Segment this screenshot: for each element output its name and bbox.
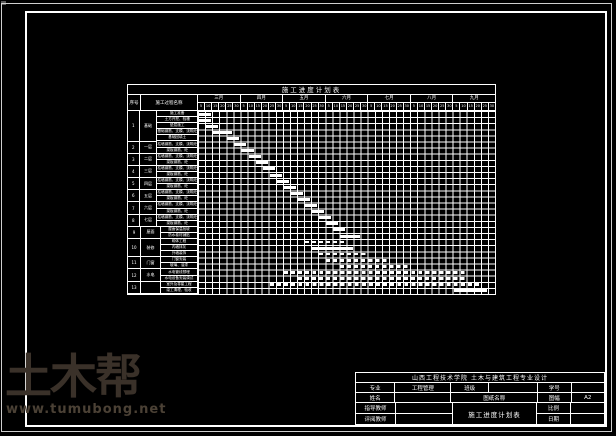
advisor-value	[396, 403, 453, 413]
row-category: 一层	[140, 142, 158, 154]
gantt-bar	[206, 125, 218, 128]
day-label: 30	[446, 103, 453, 111]
row-seq: 8	[128, 215, 140, 227]
gantt-bar	[305, 204, 317, 207]
task-group: 7六层柱墙钢筋、支模、浇筑砼梁板钢筋、砼	[128, 202, 197, 214]
day-label: 15	[382, 103, 389, 111]
task-cells: 柱墙钢筋、支模、浇筑砼梁板钢筋、砼	[157, 142, 197, 154]
name-value	[395, 393, 451, 402]
month-label: 七月	[368, 95, 411, 103]
gantt-bar	[241, 149, 253, 152]
day-label: 5	[326, 103, 333, 111]
row-seq: 3	[128, 154, 140, 166]
gantt-bar	[284, 271, 466, 274]
task-groups: 1基础施工准备土方开挖、验槽垫层施工基础钢筋、支模、浇筑砼基础回填土2一层柱墙钢…	[128, 111, 197, 294]
row-seq: 9	[128, 227, 141, 239]
drawing-name: 施工进度计划表	[453, 403, 537, 424]
month-label: 六月	[326, 95, 369, 103]
seq-column-header: 序号	[128, 95, 141, 111]
gantt-bar	[312, 210, 324, 213]
row-category: 水电	[141, 269, 161, 281]
task-cells: 屋面保温找坡防水卷材铺贴	[161, 227, 197, 239]
day-label: 25	[439, 103, 446, 111]
day-label: 5	[368, 103, 375, 111]
date-label: 日期	[537, 414, 571, 425]
sheet-size-value: A2	[572, 393, 604, 402]
day-label: 15	[425, 103, 432, 111]
task-group: 10装修砌体工程内墙抹灰外墙装饰	[128, 239, 197, 257]
scale-date-column: 比例 日期	[537, 403, 604, 424]
gantt-bar	[326, 222, 338, 225]
sheet-size-label: 图幅	[538, 393, 571, 402]
task-cells: 柱墙钢筋、支模、浇筑砼梁板钢筋、砼	[157, 215, 197, 227]
watermark-site: www.tumubong.net	[6, 402, 166, 417]
schedule-left-header: 序号 施工过程名称	[128, 95, 197, 111]
day-label: 15	[297, 103, 304, 111]
row-seq: 5	[128, 178, 140, 190]
gantt-bar	[319, 253, 367, 256]
name-label: 姓名	[356, 393, 395, 402]
month-header-row: 三月四月五月六月七月八月九月	[197, 95, 495, 103]
task-group: 1基础施工准备土方开挖、验槽垫层施工基础钢筋、支模、浇筑砼基础回填土	[128, 111, 197, 142]
title-block-row-1: 专业 工程管理 班级 学号	[356, 383, 604, 393]
gantt-bar	[340, 265, 409, 268]
task-group: 6五层柱墙钢筋、支模、浇筑砼梁板钢筋、砼	[128, 190, 197, 202]
day-label: 30	[404, 103, 411, 111]
row-seq: 1	[128, 111, 140, 142]
gantt-bar	[213, 131, 232, 134]
schedule-table: 施工进度计划表 序号 施工过程名称 三月四月五月六月七月八月九月 5101520…	[127, 84, 496, 295]
student-id-label: 学号	[538, 383, 571, 392]
gantt-bar	[319, 216, 331, 219]
gantt-bar	[270, 174, 282, 177]
day-label: 5	[453, 103, 460, 111]
task-cells: 柱墙钢筋、支模、浇筑砼梁板钢筋、砼	[157, 154, 197, 166]
day-label: 30	[319, 103, 326, 111]
day-label: 10	[248, 103, 255, 111]
day-label: 30	[276, 103, 283, 111]
scale-label: 比例	[537, 403, 571, 413]
row-seq: 10	[128, 239, 141, 257]
day-label: 10	[375, 103, 382, 111]
gantt-grid	[197, 111, 495, 294]
day-label: 20	[390, 103, 397, 111]
task-group: 12水电水电管线预埋水电设备安装调试	[128, 269, 197, 281]
day-label: 20	[475, 103, 482, 111]
gantt-bar	[284, 186, 296, 189]
teacher-column: 指导教师 评阅教师	[356, 403, 453, 424]
task-group: 9屋面屋面保温找坡防水卷材铺贴	[128, 227, 197, 239]
day-label: 15	[212, 103, 219, 111]
task-group: 11门窗门窗安装玻璃、油漆	[128, 257, 197, 269]
day-label: 20	[432, 103, 439, 111]
task-cells: 施工准备土方开挖、验槽垫层施工基础钢筋、支模、浇筑砼基础回填土	[157, 111, 197, 142]
gantt-bar	[263, 167, 275, 170]
school-title: 山西工程技术学院 土木与建筑工程专业设计	[356, 373, 604, 383]
gantt-bar	[256, 161, 268, 164]
row-category: 七层	[140, 215, 158, 227]
day-label: 25	[312, 103, 319, 111]
date-value	[571, 414, 604, 425]
day-label: 20	[219, 103, 226, 111]
month-label: 九月	[453, 95, 495, 103]
day-label: 15	[340, 103, 347, 111]
task-group: 8七层柱墙钢筋、支模、浇筑砼梁板钢筋、砼	[128, 215, 197, 227]
task-cells: 柱墙钢筋、支模、浇筑砼梁板钢筋、砼	[157, 178, 197, 190]
gantt-bar	[333, 228, 345, 231]
day-label: 30	[489, 103, 495, 111]
row-category	[141, 282, 161, 294]
day-label: 10	[205, 103, 212, 111]
row-seq: 7	[128, 202, 140, 214]
day-label: 15	[255, 103, 262, 111]
day-label: 5	[198, 103, 205, 111]
day-label: 10	[290, 103, 297, 111]
schedule-title: 施工进度计划表	[128, 85, 495, 95]
row-category: 二层	[140, 154, 158, 166]
day-label: 5	[241, 103, 248, 111]
day-label: 10	[333, 103, 340, 111]
gantt-bar	[326, 259, 388, 262]
advisor-label: 指导教师	[356, 403, 396, 413]
row-category: 门窗	[141, 257, 161, 269]
gantt-bar	[312, 247, 352, 250]
day-header-row: 5101520253051015202530510152025305101520…	[197, 103, 495, 111]
class-value	[489, 383, 538, 392]
title-block-row-2: 姓名 图纸名称 图幅 A2	[356, 393, 604, 403]
gantt-bar	[227, 137, 239, 140]
month-label: 八月	[411, 95, 454, 103]
title-block: 山西工程技术学院 土木与建筑工程专业设计 专业 工程管理 班级 学号 姓名 图纸…	[355, 372, 605, 425]
major-label: 专业	[356, 383, 395, 392]
row-seq: 12	[128, 269, 141, 281]
reviewer-label: 评阅教师	[356, 414, 396, 425]
row-category: 屋面	[141, 227, 161, 239]
task-group: 5四层柱墙钢筋、支模、浇筑砼梁板钢筋、砼	[128, 178, 197, 190]
gantt-bar	[454, 289, 487, 292]
gantt-bar	[249, 155, 261, 158]
reviewer-value	[396, 414, 453, 425]
gantt-bar	[270, 283, 480, 286]
day-label: 10	[460, 103, 467, 111]
gantt-bar	[305, 241, 345, 244]
month-label: 三月	[198, 95, 241, 103]
row-category: 五层	[140, 190, 158, 202]
row-category: 装修	[141, 239, 161, 257]
day-label: 30	[361, 103, 368, 111]
row-seq: 11	[128, 257, 141, 269]
task-group: 13室外及零星工程竣工清理、验收	[128, 282, 197, 294]
day-label: 20	[262, 103, 269, 111]
day-label: 30	[233, 103, 240, 111]
day-label: 25	[482, 103, 489, 111]
task-cells: 柱墙钢筋、支模、浇筑砼梁板钢筋、砼	[157, 166, 197, 178]
gantt-bar	[199, 119, 211, 122]
major-value: 工程管理	[395, 383, 451, 392]
day-label: 25	[354, 103, 361, 111]
row-seq: 13	[128, 282, 141, 294]
gantt-bar	[234, 143, 246, 146]
day-label: 25	[226, 103, 233, 111]
row-seq: 6	[128, 190, 140, 202]
row-category: 基础	[140, 111, 158, 142]
task-cells: 柱墙钢筋、支模、浇筑砼梁板钢筋、砼	[157, 202, 197, 214]
gantt-bar	[277, 180, 289, 183]
gantt-bar	[199, 113, 211, 116]
day-label: 20	[304, 103, 311, 111]
row-seq: 4	[128, 166, 140, 178]
row-category: 四层	[140, 178, 158, 190]
day-label: 25	[397, 103, 404, 111]
task-name: 竣工清理、验收	[161, 288, 197, 294]
task-group: 3二层柱墙钢筋、支模、浇筑砼梁板钢筋、砼	[128, 154, 197, 166]
task-cells: 门窗安装玻璃、油漆	[161, 257, 197, 269]
day-label: 5	[283, 103, 290, 111]
gantt-bar	[298, 198, 310, 201]
task-group: 4三层柱墙钢筋、支模、浇筑砼梁板钢筋、砼	[128, 166, 197, 178]
sheet-name-label: 图纸名称	[451, 393, 538, 402]
gantt-bar	[291, 192, 303, 195]
day-label: 20	[347, 103, 354, 111]
gantt-bar	[298, 277, 466, 280]
process-column-header: 施工过程名称	[141, 95, 197, 111]
row-category: 六层	[140, 202, 158, 214]
day-label: 5	[411, 103, 418, 111]
month-label: 五月	[283, 95, 326, 103]
day-label: 25	[269, 103, 276, 111]
task-group: 2一层柱墙钢筋、支模、浇筑砼梁板钢筋、砼	[128, 142, 197, 154]
student-id-value	[572, 383, 604, 392]
day-label: 15	[468, 103, 475, 111]
row-seq: 2	[128, 142, 140, 154]
task-cells: 柱墙钢筋、支模、浇筑砼梁板钢筋、砼	[157, 190, 197, 202]
month-label: 四月	[241, 95, 284, 103]
class-label: 班级	[451, 383, 488, 392]
row-category: 三层	[140, 166, 158, 178]
title-block-rows-3-4: 指导教师 评阅教师 施工进度计划表 比例 日期	[356, 403, 604, 424]
gantt-bar	[340, 235, 359, 238]
task-cells: 室外及零星工程竣工清理、验收	[161, 282, 197, 294]
task-cells: 砌体工程内墙抹灰外墙装饰	[161, 239, 197, 257]
task-cells: 水电管线预埋水电设备安装调试	[161, 269, 197, 281]
watermark-brand: 土木帮	[5, 352, 140, 404]
scale-value	[571, 403, 604, 413]
day-label: 10	[418, 103, 425, 111]
